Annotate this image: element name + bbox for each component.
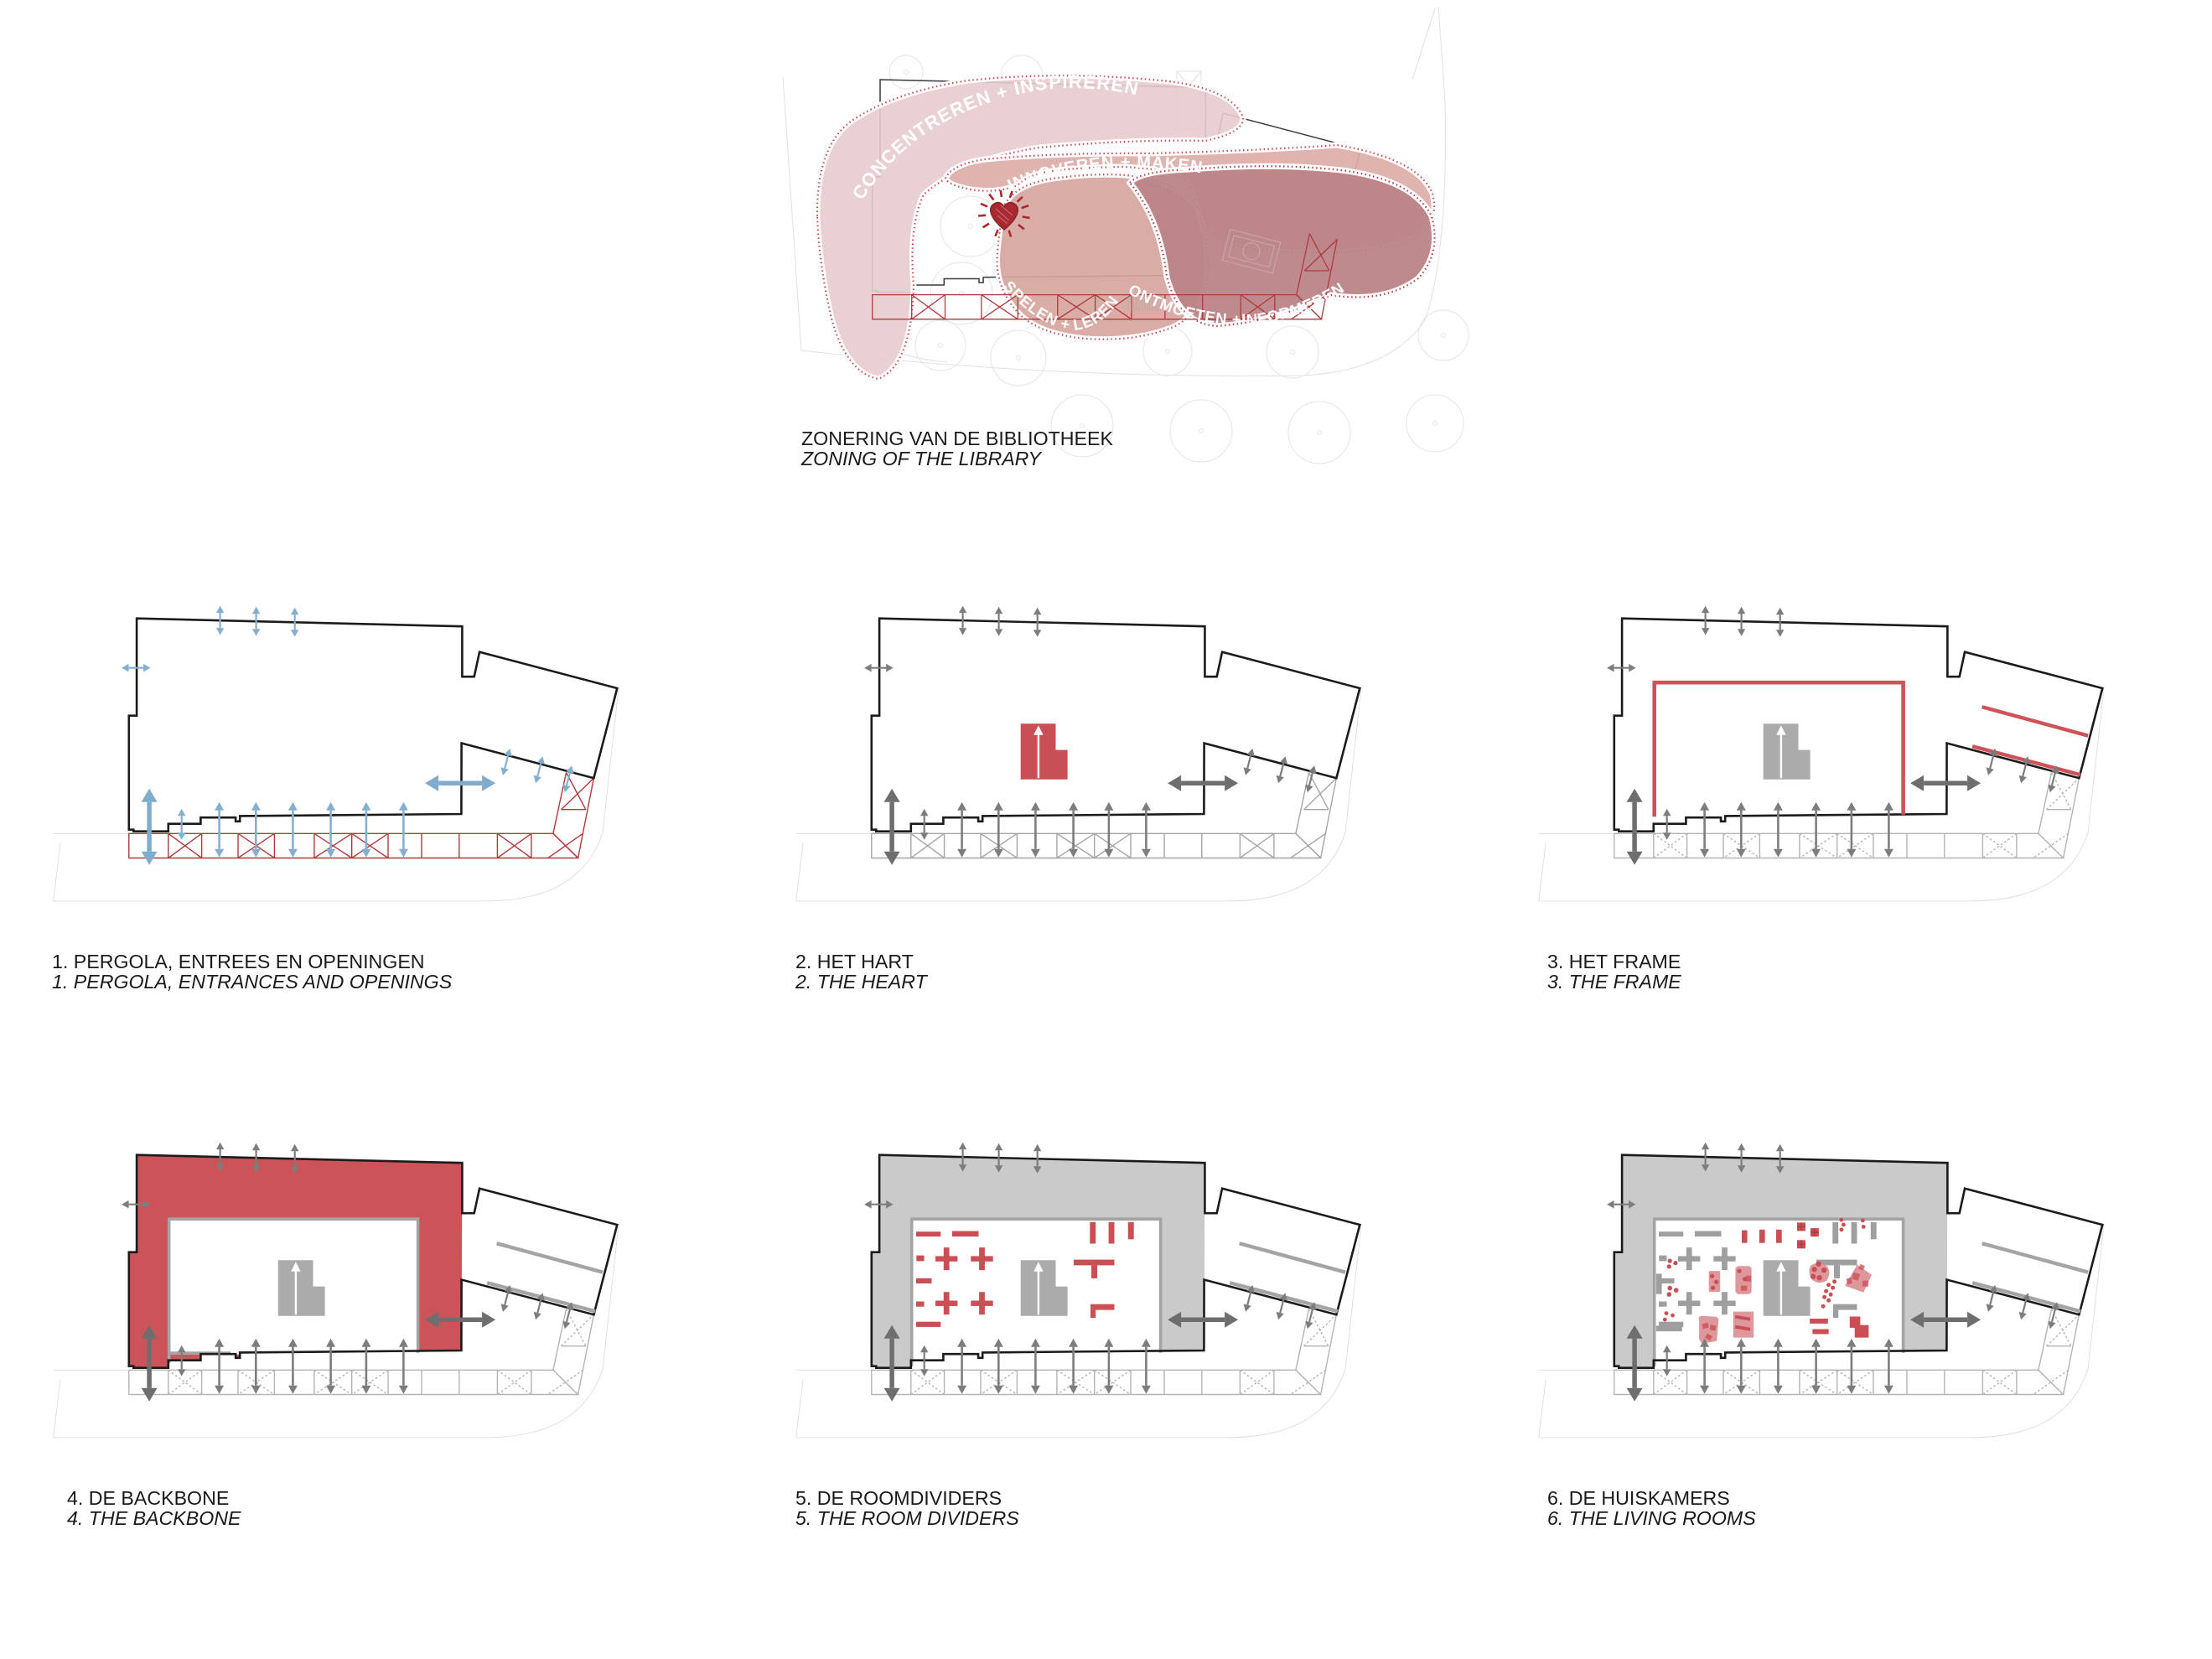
- svg-text:3. THE FRAME: 3. THE FRAME: [1547, 971, 1681, 993]
- svg-text:1. PERGOLA, ENTRANCES AND OPEN: 1. PERGOLA, ENTRANCES AND OPENINGS: [52, 971, 453, 993]
- svg-text:ZONERING VAN DE BIBLIOTHEEK: ZONERING VAN DE BIBLIOTHEEK: [801, 428, 1113, 449]
- svg-text:1. PERGOLA, ENTREES EN OPENING: 1. PERGOLA, ENTREES EN OPENINGEN: [52, 951, 425, 972]
- svg-text:3. HET FRAME: 3. HET FRAME: [1547, 951, 1681, 972]
- svg-text:6. DE HUISKAMERS: 6. DE HUISKAMERS: [1547, 1487, 1730, 1509]
- svg-text:4. DE BACKBONE: 4. DE BACKBONE: [67, 1487, 229, 1509]
- svg-text:ZONING OF THE LIBRARY: ZONING OF THE LIBRARY: [800, 448, 1043, 469]
- svg-text:2. THE HEART: 2. THE HEART: [795, 971, 929, 993]
- svg-text:2. HET HART: 2. HET HART: [795, 951, 914, 972]
- svg-text:4. THE BACKBONE: 4. THE BACKBONE: [67, 1507, 241, 1529]
- svg-text:5. THE ROOM DIVIDERS: 5. THE ROOM DIVIDERS: [795, 1507, 1019, 1529]
- svg-text:5. DE ROOMDIVIDERS: 5. DE ROOMDIVIDERS: [795, 1487, 1002, 1509]
- svg-text:6. THE LIVING ROOMS: 6. THE LIVING ROOMS: [1547, 1507, 1756, 1529]
